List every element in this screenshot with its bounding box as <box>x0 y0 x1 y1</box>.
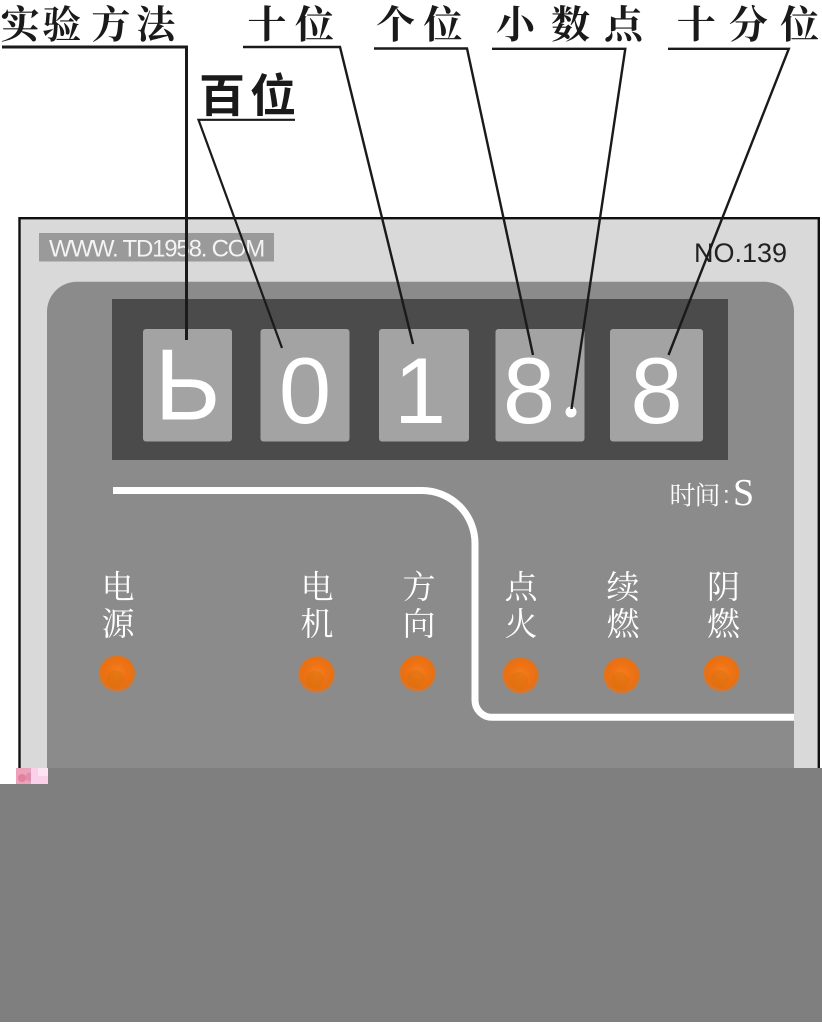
svg-text:Ь: Ь <box>154 330 220 442</box>
svg-text:8: 8 <box>630 338 682 443</box>
svg-text:8: 8 <box>503 338 555 443</box>
svg-text:0: 0 <box>279 338 331 443</box>
svg-text:1: 1 <box>394 338 446 443</box>
svg-text:S: S <box>733 472 754 514</box>
svg-text:WWW. TD1958. COM: WWW. TD1958. COM <box>49 236 264 263</box>
svg-text::: : <box>723 482 730 509</box>
